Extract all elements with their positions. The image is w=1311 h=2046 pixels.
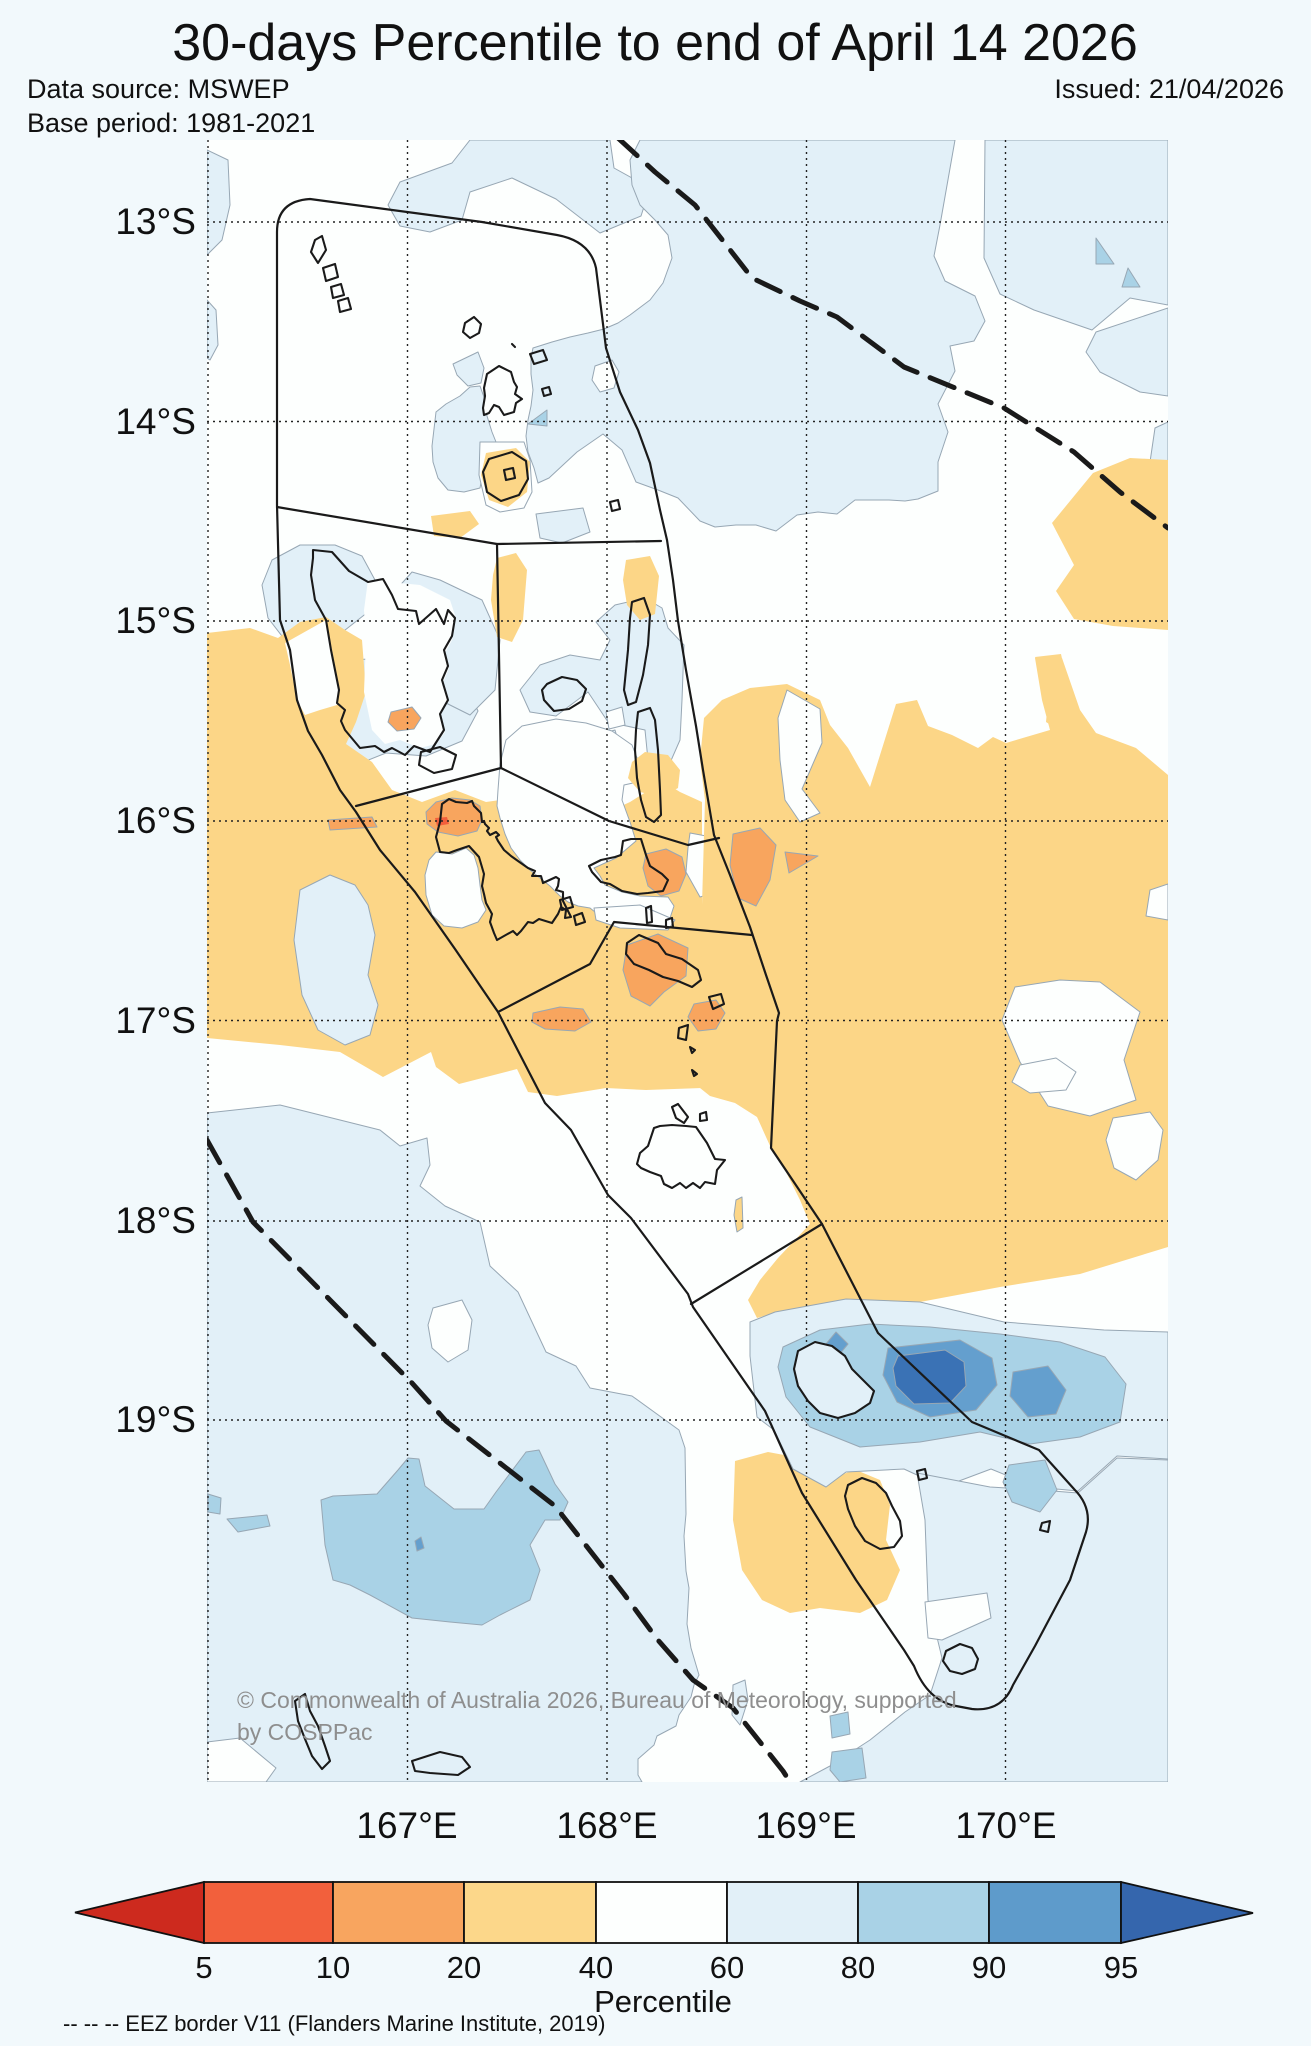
svg-text:by COSPPac: by COSPPac	[237, 1719, 373, 1745]
svg-text:Percentile: Percentile	[594, 1984, 732, 2019]
svg-text:10: 10	[316, 1950, 350, 1985]
svg-text:95: 95	[1104, 1950, 1138, 1985]
svg-text:90: 90	[972, 1950, 1006, 1985]
svg-text:5: 5	[195, 1950, 212, 1985]
svg-text:-- -- -- EEZ border V11 (Fland: -- -- -- EEZ border V11 (Flanders Marine…	[63, 2011, 605, 2036]
svg-text:Data source: MSWEP: Data source: MSWEP	[27, 74, 290, 104]
svg-text:168°E: 168°E	[556, 1805, 657, 1846]
svg-text:30-days Percentile to end of A: 30-days Percentile to end of April 14 20…	[172, 14, 1138, 72]
svg-text:20: 20	[447, 1950, 481, 1985]
svg-text:14°S: 14°S	[115, 401, 196, 442]
svg-text:13°S: 13°S	[115, 201, 196, 242]
svg-text:40: 40	[579, 1950, 613, 1985]
svg-text:19°S: 19°S	[115, 1399, 196, 1440]
svg-text:16°S: 16°S	[115, 800, 196, 841]
svg-text:17°S: 17°S	[115, 1000, 196, 1041]
svg-text:169°E: 169°E	[755, 1805, 856, 1846]
svg-text:© Commonwealth of Australia 20: © Commonwealth of Australia 2026, Bureau…	[237, 1687, 957, 1713]
svg-text:170°E: 170°E	[955, 1805, 1056, 1846]
svg-text:Base period: 1981-2021: Base period: 1981-2021	[27, 108, 315, 138]
svg-text:18°S: 18°S	[115, 1200, 196, 1241]
svg-text:Issued: 21/04/2026: Issued: 21/04/2026	[1054, 74, 1284, 104]
svg-text:167°E: 167°E	[356, 1805, 457, 1846]
svg-text:15°S: 15°S	[115, 600, 196, 641]
svg-text:60: 60	[710, 1950, 744, 1985]
svg-text:80: 80	[841, 1950, 875, 1985]
